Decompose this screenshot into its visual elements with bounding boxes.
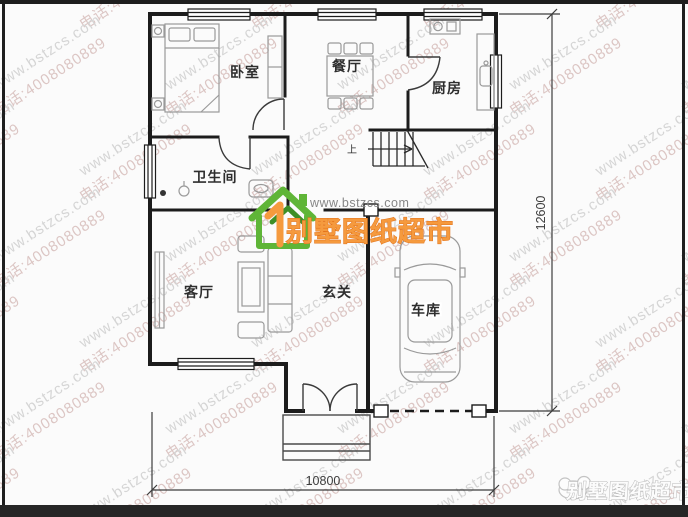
- tv-cabinet-icon: [155, 252, 164, 328]
- entry-double-door-icon: [303, 384, 357, 411]
- logo-name-text: 别墅图纸超市: [286, 216, 454, 247]
- logo-site-text: www.bstzcs.com: [309, 196, 409, 210]
- bed-icon: [165, 24, 219, 112]
- stove-icon: [430, 19, 460, 34]
- floorplan-screenshot: www.bstzcs.com电话:4008080889www.bstzcs.co…: [0, 0, 688, 517]
- floorplan-svg: 上: [0, 0, 688, 517]
- porch-steps: [283, 415, 370, 460]
- walls: [150, 14, 496, 411]
- corner-logo: 别墅图纸超市: [559, 477, 688, 503]
- window-icon: [188, 9, 250, 20]
- corner-logo-text: 别墅图纸超市: [565, 479, 688, 503]
- frame-top-edge: [0, 0, 688, 4]
- frame-left-edge: [2, 4, 5, 505]
- bedroom-door-icon: [253, 99, 284, 130]
- window-icons: [145, 9, 502, 370]
- room-label-bedroom: 卧室: [230, 64, 260, 80]
- room-label-bathroom: 卫生间: [193, 169, 238, 185]
- stairs-icon: [368, 130, 428, 168]
- room-label-kitchen: 厨房: [432, 80, 462, 96]
- window-icon: [178, 359, 254, 370]
- center-logo: www.bstzcs.com 别墅图纸超市: [252, 190, 454, 247]
- window-icon: [318, 9, 376, 20]
- frame-right-edge: [682, 4, 685, 505]
- floor-drain-icon: [160, 181, 189, 196]
- window-icon: [145, 145, 156, 198]
- washbasin-icon: [249, 180, 273, 197]
- room-label-garage: 车库: [411, 302, 441, 318]
- wardrobe-icon: [268, 36, 282, 98]
- dimension-height-label: 12600: [534, 196, 548, 231]
- stair-up-label: 上: [347, 144, 357, 156]
- room-label-dining: 餐厅: [331, 58, 362, 74]
- frame-bottom-bar: [0, 505, 688, 517]
- sofa-icon: [238, 236, 292, 338]
- window-icon: [424, 9, 482, 20]
- nightstand-icon: [152, 25, 164, 110]
- room-label-living: 客厅: [183, 284, 214, 300]
- room-label-foyer: 玄关: [322, 284, 352, 300]
- dining-table-icon: [327, 43, 373, 109]
- dimension-width-label: 10800: [306, 474, 341, 488]
- coffee-table-icon: [238, 262, 264, 312]
- bathroom-door-icon: [219, 137, 250, 169]
